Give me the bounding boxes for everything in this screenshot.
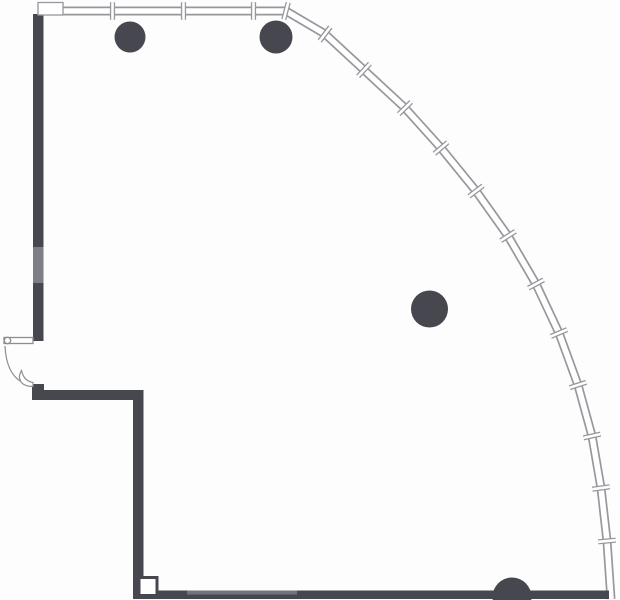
column-circle <box>493 578 532 600</box>
column-circle <box>411 291 448 328</box>
door-hinge <box>4 337 10 343</box>
bottom-door-frame-box <box>139 578 157 596</box>
lower-vertical-wall <box>133 390 144 592</box>
door-lower-leaf <box>19 371 33 387</box>
left-wall <box>33 14 44 341</box>
floor-plan-drawing <box>0 0 620 600</box>
left-wall-gray-segment <box>33 247 44 283</box>
top-left-frame-box <box>38 3 63 16</box>
column-circle <box>260 21 293 54</box>
window-wall-outline <box>62 11 611 599</box>
column-circle <box>115 22 146 53</box>
lower-horizontal-wall <box>32 390 143 400</box>
bottom-wall-light-strip <box>187 591 297 595</box>
window-wall-inner <box>62 11 611 599</box>
mullion-tick-inner <box>598 540 615 542</box>
floor-plan-svg <box>0 0 620 600</box>
